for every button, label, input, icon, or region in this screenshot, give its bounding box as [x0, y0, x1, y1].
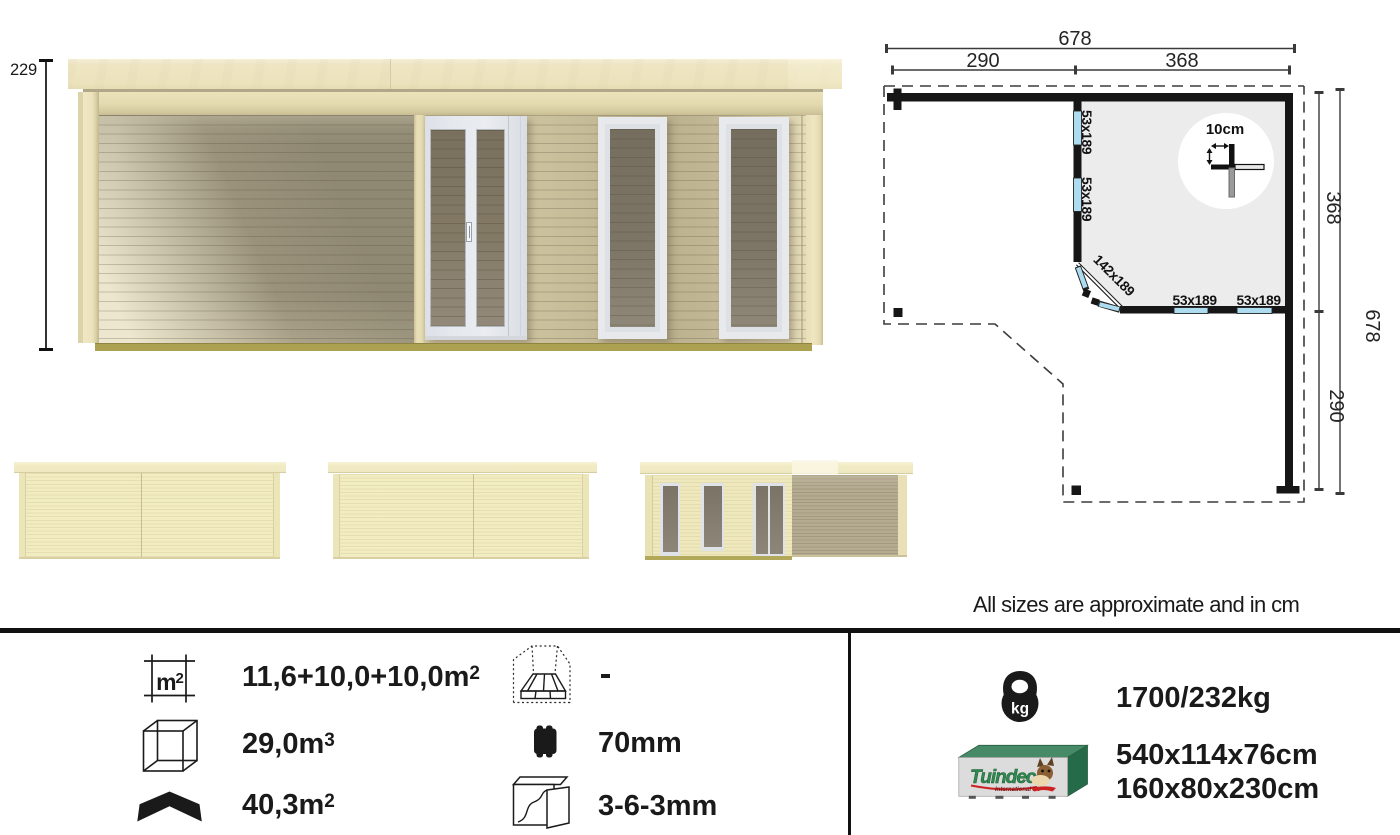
svg-text:678: 678: [1058, 28, 1091, 50]
svg-text:53x189: 53x189: [1173, 293, 1218, 308]
svg-text:368: 368: [1322, 191, 1344, 224]
svg-text:368: 368: [1165, 50, 1198, 72]
svg-text:m2: m2: [156, 669, 183, 695]
svg-text:290: 290: [1325, 389, 1347, 422]
svg-text:53x189: 53x189: [1079, 110, 1094, 155]
svg-text:10cm: 10cm: [1206, 121, 1244, 138]
svg-text:kg: kg: [1011, 701, 1029, 718]
svg-text:53x189: 53x189: [1237, 293, 1282, 308]
svg-text:678: 678: [1361, 309, 1383, 342]
svg-text:53x189: 53x189: [1079, 177, 1094, 222]
svg-text:290: 290: [966, 50, 999, 72]
